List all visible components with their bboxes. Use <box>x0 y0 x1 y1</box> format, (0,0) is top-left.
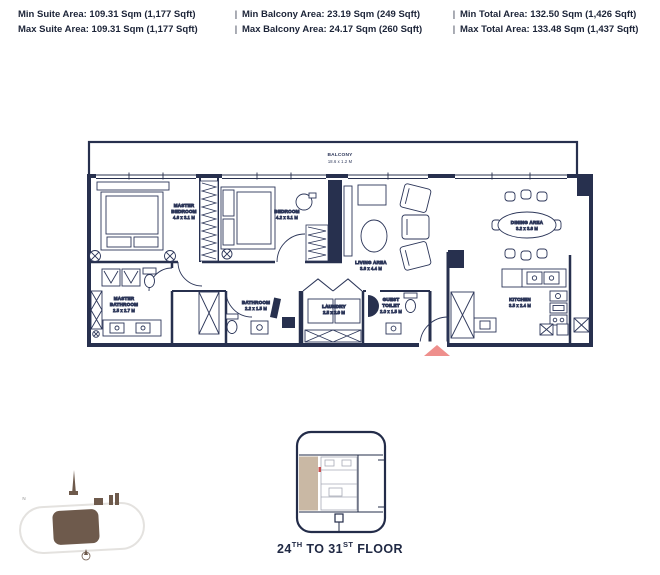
toilet-tank <box>226 314 238 319</box>
master-bedroom-dim: 4.6 x 3.1 M <box>173 215 195 220</box>
dining-chair <box>521 251 531 260</box>
skyline-icons <box>69 470 119 505</box>
sink <box>527 272 542 284</box>
bedroom-label: BEDROOM <box>274 209 299 214</box>
bathroom-label: BATHROOM <box>242 300 270 305</box>
cabinet-row <box>305 330 361 342</box>
side-table <box>309 193 316 198</box>
kitchen-dim: 3.5 x 2.4 M <box>509 303 531 308</box>
sink-counter <box>251 321 268 334</box>
cabinet <box>557 324 568 335</box>
dining-chair <box>537 192 547 201</box>
tv-unit <box>344 186 352 256</box>
side-table <box>358 185 386 205</box>
floor-ordinal: TH <box>292 540 303 549</box>
floor-ordinal: ST <box>343 540 353 549</box>
master-bathroom-label-1: MASTER <box>114 296 135 301</box>
dining-table <box>498 212 556 238</box>
bedside-lamp-icon <box>222 249 232 259</box>
wall-block <box>328 180 342 262</box>
laundry-label: LAUNDRY <box>322 304 346 309</box>
keyplan-unit-highlight <box>299 457 318 511</box>
shower-tray <box>282 317 295 328</box>
dining-chair <box>505 192 515 201</box>
towel-rack <box>91 291 102 329</box>
master-bathroom-dim: 2.5 x 2.7 M <box>113 308 135 313</box>
tower-icon <box>109 495 113 505</box>
coffee-table <box>361 220 387 252</box>
master-bedroom-label-1: MASTER <box>174 203 195 208</box>
balcony-label: BALCONY <box>327 152 353 158</box>
building-icon <box>94 498 103 505</box>
dining-chair <box>537 249 547 258</box>
laundry-dim: 2.5 x 2.0 M <box>323 310 345 315</box>
counter <box>474 318 496 332</box>
bedroom-dim: 4.2 x 3.1 M <box>276 215 298 220</box>
sink <box>544 272 559 284</box>
dining-area-label: DINING AREA <box>511 220 544 225</box>
toilet <box>406 300 416 313</box>
guest-toilet-label-2: TOILET <box>382 303 399 308</box>
master-bathroom-label-2: BATHROOM <box>110 302 138 307</box>
locator-map: N <box>16 458 156 570</box>
appliance <box>550 291 567 301</box>
wall-block <box>577 176 591 196</box>
floor-number: 24 <box>277 542 292 556</box>
entry-opening <box>419 342 447 349</box>
floor-to: TO 31 <box>303 542 343 556</box>
guest-toilet-label-1: GUEST <box>383 297 400 302</box>
dining-chair <box>521 190 531 199</box>
master-bedroom-label-2: BEDROOM <box>171 209 196 214</box>
keyplan-entry-mark <box>319 467 322 472</box>
pillow <box>223 219 234 245</box>
balcony: BALCONY 18.6 x 1.2 M <box>89 142 577 176</box>
console <box>97 182 169 190</box>
burj-khalifa-icon <box>72 470 76 494</box>
pillow <box>107 237 131 247</box>
floor-word: FLOOR <box>353 542 403 556</box>
toilet <box>227 321 237 334</box>
armchair <box>402 215 429 239</box>
sink <box>386 323 401 334</box>
hall-closet <box>199 292 219 334</box>
toilet-tank <box>404 293 417 298</box>
living-area-label: LIVING AREA <box>355 260 387 265</box>
dining-chair <box>505 249 515 258</box>
tower-icon <box>115 493 119 505</box>
floorplan-page: Min Suite Area: 109.31 Sqm (1,177 Sqft) … <box>0 0 660 575</box>
north-label: N <box>22 496 25 501</box>
balcony-dim: 18.6 x 1.2 M <box>328 159 353 164</box>
oven <box>550 303 567 313</box>
bathroom-dim: 2.2 x 1.5 M <box>245 306 267 311</box>
living-area-dim: 3.6 x 4.4 M <box>360 266 382 271</box>
keyplan-core-box <box>335 514 343 522</box>
keyplan <box>294 429 388 537</box>
pillow <box>134 237 158 247</box>
toilet-tank <box>143 268 156 274</box>
pillow <box>223 190 234 216</box>
dining-area-dim: 3.2 x 3.6 M <box>516 226 538 231</box>
toilet <box>145 275 155 288</box>
guest-toilet-dim: 2.0 x 1.5 M <box>380 309 402 314</box>
locator-site-block <box>52 509 100 545</box>
wall-block <box>448 250 464 268</box>
kitchen-label: KITCHEN <box>509 297 531 302</box>
appliance <box>550 315 567 325</box>
keyplan-floor-label: 24TH TO 31ST FLOOR <box>250 541 430 556</box>
